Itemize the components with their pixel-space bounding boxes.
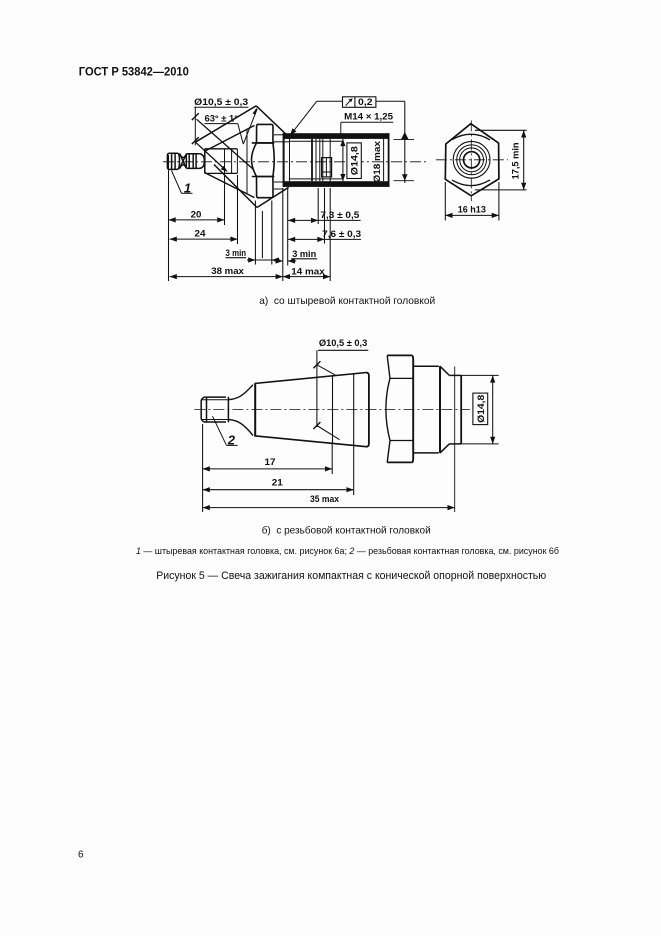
- svg-text:17: 17: [265, 457, 276, 468]
- svg-text:2: 2: [227, 432, 236, 447]
- svg-text:17,5 min: 17,5 min: [511, 142, 522, 179]
- svg-text:21: 21: [272, 477, 284, 488]
- svg-text:6: 6: [78, 850, 84, 861]
- svg-text:1 — штыревая контактная головк: 1 — штыревая контактная головка, см. рис…: [136, 546, 559, 556]
- svg-text:ГОСТ Р 53842—2010: ГОСТ Р 53842—2010: [79, 67, 189, 79]
- svg-text:63° ± 1°: 63° ± 1°: [205, 114, 239, 125]
- svg-text:1: 1: [184, 180, 191, 195]
- svg-text:Рисунок 5 — Свеча зажигания ко: Рисунок 5 — Свеча зажигания компактная с…: [156, 570, 546, 582]
- svg-text:38 max: 38 max: [211, 266, 244, 277]
- svg-text:20: 20: [191, 210, 202, 221]
- svg-text:б) с резьбовой контактной гол: б) с резьбовой контактной головкой: [262, 524, 431, 536]
- svg-text:Ø10,5 ± 0,3: Ø10,5 ± 0,3: [319, 338, 367, 349]
- svg-text:7,3 ± 0,5: 7,3 ± 0,5: [320, 210, 360, 221]
- svg-text:Ø10,5 ± 0,3: Ø10,5 ± 0,3: [194, 97, 248, 108]
- svg-text:Ø14,8: Ø14,8: [350, 146, 361, 175]
- svg-text:M14 × 1,25: M14 × 1,25: [344, 111, 394, 122]
- svg-text:16 h13: 16 h13: [458, 205, 486, 216]
- svg-text:0,2: 0,2: [358, 97, 373, 107]
- svg-text:а) со штыревой контактной гол: а) со штыревой контактной головкой: [259, 295, 435, 307]
- svg-text:14 max: 14 max: [291, 266, 325, 277]
- svg-text:7,6 ± 0,3: 7,6 ± 0,3: [322, 229, 361, 240]
- svg-text:Ø18 max: Ø18 max: [372, 140, 383, 182]
- svg-text:35 max: 35 max: [310, 494, 340, 505]
- svg-text:Ø14,8: Ø14,8: [476, 395, 487, 423]
- svg-text:24: 24: [195, 229, 207, 240]
